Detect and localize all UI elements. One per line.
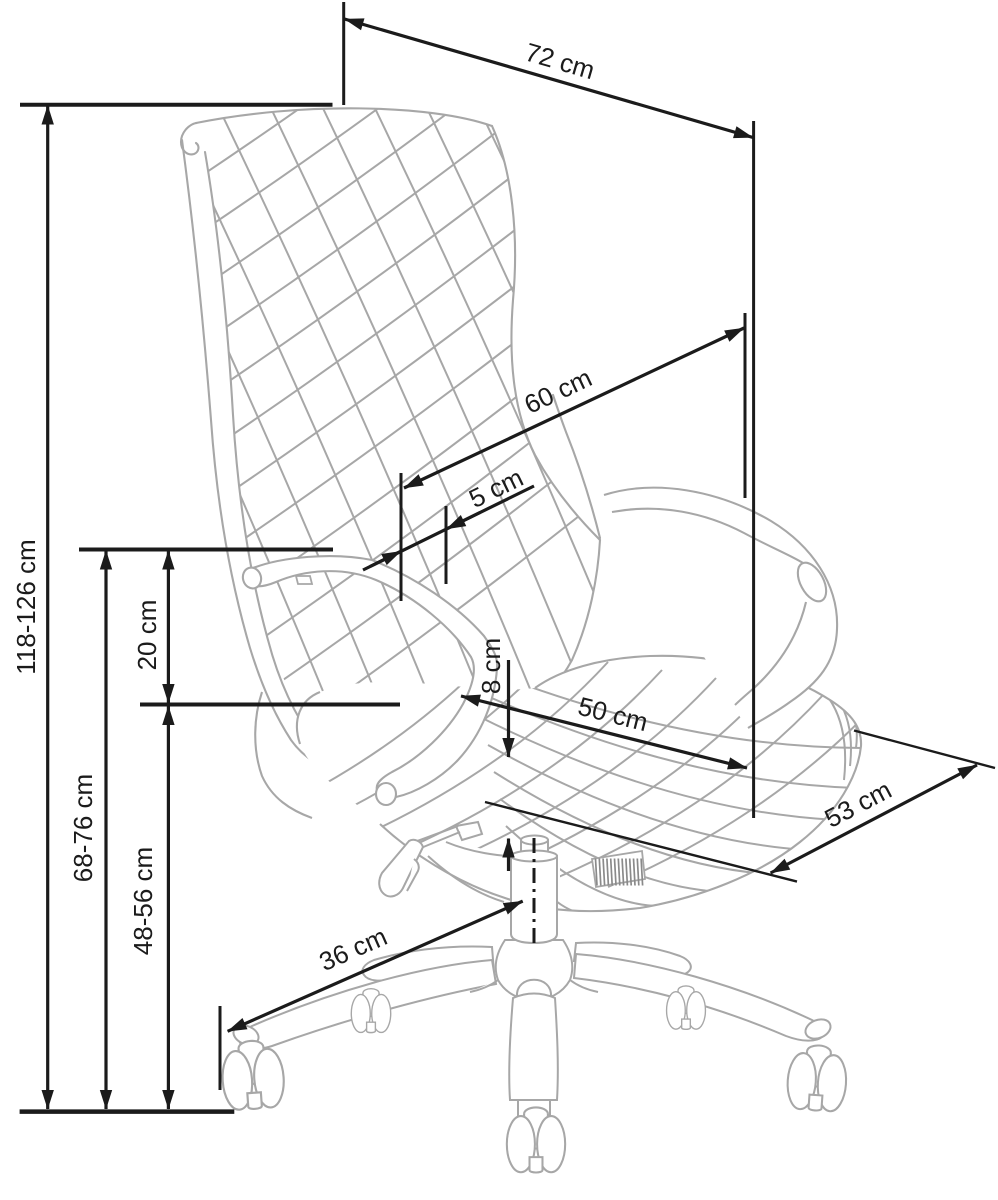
svg-text:8 cm: 8 cm [476,638,506,694]
svg-text:48-56 cm: 48-56 cm [128,847,158,955]
svg-text:118-126 cm: 118-126 cm [11,539,41,674]
svg-text:68-76 cm: 68-76 cm [68,774,98,882]
svg-text:20 cm: 20 cm [132,600,162,671]
